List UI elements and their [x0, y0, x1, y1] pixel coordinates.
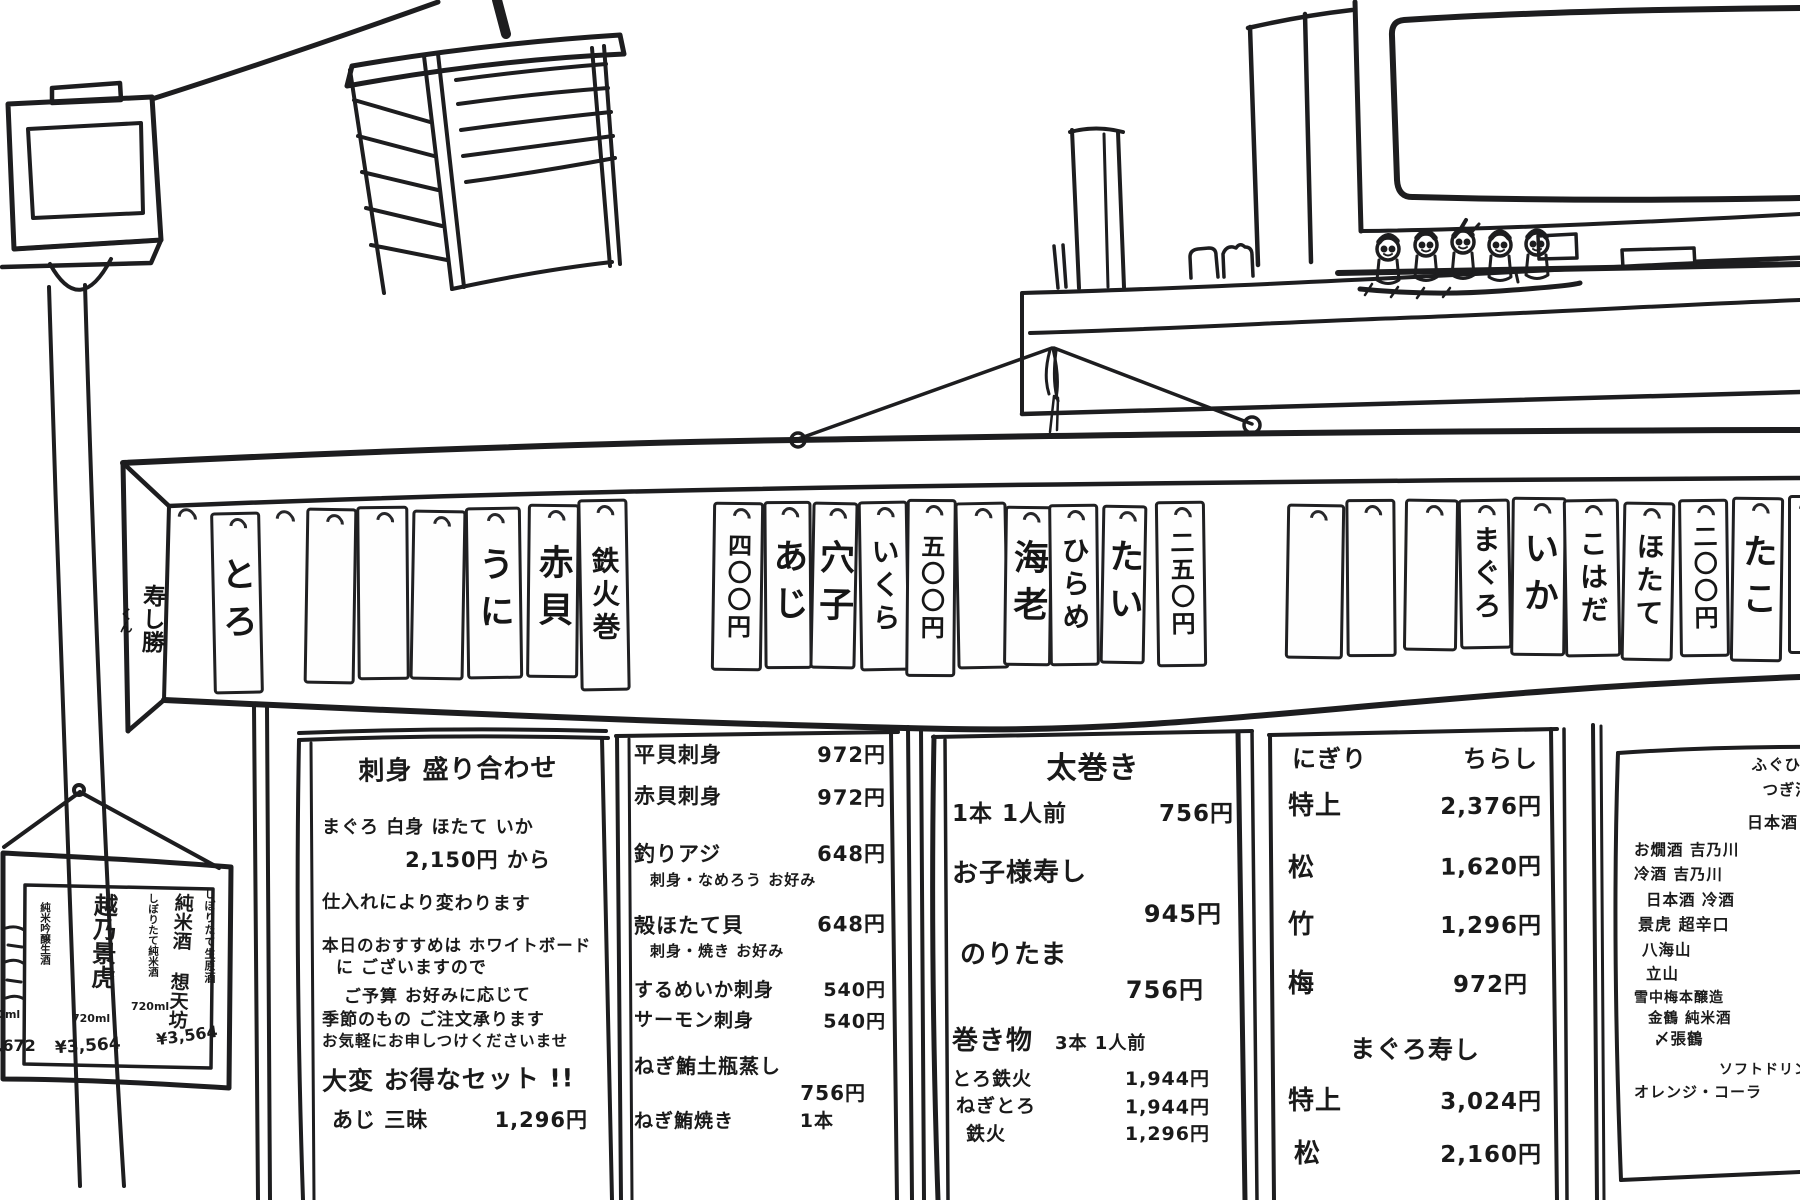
menu-row: 松2,160円: [1288, 1138, 1542, 1171]
tag-hook-icon: [373, 509, 398, 534]
menu-row: 赤貝刺身972円: [634, 783, 886, 811]
menu-row: 特上2,376円: [1288, 790, 1542, 823]
tag-hook-icon: [1170, 504, 1195, 529]
menu-tag: 二〇〇円: [1678, 499, 1730, 658]
hanging-lantern: [347, 0, 624, 293]
menu-tag: 四〇〇円: [711, 502, 764, 672]
menu-tag: 穴子: [809, 502, 858, 670]
menu-note: 刺身・なめろう お好み: [634, 871, 886, 890]
menu-row: ねぎ鮪焼き1本: [634, 1110, 834, 1134]
sake-price: ¥3,672: [0, 1036, 36, 1055]
menu-tag: たこ: [1730, 497, 1784, 663]
shop-name: 寿し勝: [133, 584, 169, 654]
menu-row: 殻ほたて貝648円: [634, 910, 886, 938]
menu-row: 釣りアジ648円: [634, 841, 886, 867]
tag-hook-icon: [1581, 502, 1606, 527]
menu-row: ねぎとろ1,944円: [952, 1095, 1234, 1121]
counter-fascia: [1022, 294, 1800, 414]
menu-tag-empty: [1345, 499, 1396, 657]
tag-hook-icon: [1306, 507, 1330, 532]
menu-tag-empty: [410, 510, 467, 681]
tag-hook-icon: [483, 510, 508, 535]
shop-name-panel: 寿し勝 くん: [123, 515, 170, 721]
menu-tag: いか: [1510, 497, 1567, 657]
menu-tag: 赤貝: [526, 504, 580, 679]
menu-tag-empty: [304, 508, 358, 685]
ceiling-cable-icon: [152, 2, 438, 99]
tag-hook-icon: [1795, 498, 1800, 523]
tag-hook-icon: [1115, 508, 1139, 533]
tv: [1392, 8, 1800, 200]
menu-tag: まぐろ: [1458, 499, 1513, 650]
menu-row: とろ鉄火1,944円: [952, 1068, 1234, 1092]
menu-row: 梅972円: [1288, 968, 1542, 1001]
board-sashimi-items: 平貝刺身972円 赤貝刺身972円 釣りアジ648円 刺身・なめろう お好み 殻…: [634, 742, 886, 1134]
tag-hook-icon: [971, 505, 996, 530]
sushi-shop-sketch: 寿し勝 くん とろ うに 赤貝 鉄火巻 四〇〇円 あじ 穴子 いくら 五〇〇円 …: [0, 0, 1800, 1200]
menu-tag: 鉄火巻: [577, 499, 630, 692]
column-header: ちらし: [1463, 744, 1538, 774]
menu-row: 平貝刺身972円: [634, 742, 886, 768]
menu-row: 鉄火1,296円: [952, 1123, 1234, 1147]
menu-row: 竹1,296円: [1288, 909, 1542, 942]
board-rolls: 太巻き 1本 1人前756円 お子様寿し 945円 のりたま 756円 巻き物 …: [952, 750, 1234, 1147]
board-nigiri: にぎり ちらし 特上2,376円 松1,620円 竹1,296円 梅972円 ま…: [1288, 744, 1542, 1170]
sake-size: 720ml: [0, 1008, 20, 1021]
menu-tag: 五〇〇円: [905, 499, 957, 677]
menu-row: 特上3,024円: [1288, 1085, 1542, 1118]
tag-hook-icon: [226, 515, 251, 540]
menu-tag: ひらめ: [1048, 504, 1100, 667]
menu-tag: いくら: [858, 501, 911, 672]
board-sashimi-set: 刺身 盛り合わせ まぐろ 白身 ほたて いか 2,150円 から 仕入れにより変…: [322, 754, 594, 1133]
menu-tag: あじ: [763, 501, 812, 669]
menu-tag: うに: [465, 507, 523, 680]
tag-hook-icon: [1361, 502, 1386, 527]
menu-tag-empty: [356, 506, 410, 680]
menu-row: サーモン刺身540円: [634, 1009, 886, 1035]
board-drinks: ふぐひれ酒 つぎ酒 日本酒 お燗酒 吉乃川 冷酒 吉乃川 日本酒 冷酒 景虎 超…: [1634, 756, 1800, 1102]
menu-row: 1本 1人前756円: [952, 800, 1234, 829]
tag-hook-icon: [1639, 505, 1663, 530]
menu-tag-empty: [954, 502, 1009, 670]
menu-row: ねぎ鮪土瓶蒸し: [634, 1054, 886, 1079]
column-header: にぎり: [1292, 744, 1367, 774]
board-title: 刺身 盛り合わせ: [322, 752, 595, 789]
promo-line: 大変 お得なセット !!: [322, 1062, 594, 1097]
menu-tag: たい: [1100, 505, 1148, 665]
menu-tag: 二五〇円: [1155, 501, 1207, 668]
tag-hook-icon: [826, 505, 850, 530]
menu-tag: こはだ: [1563, 499, 1621, 658]
tag-hook-icon: [1064, 507, 1089, 532]
street-lamp: [2, 83, 161, 290]
tag-hook-icon: [1019, 509, 1043, 534]
menu-row: のりたま: [952, 939, 1234, 972]
menu-tag-empty: [1403, 499, 1459, 652]
menu-tag: ほたて: [1621, 502, 1676, 662]
tag-hook-icon: [1693, 502, 1718, 527]
menu-note: 刺身・焼き お好み: [634, 942, 886, 961]
tag-hook-icon: [922, 502, 946, 527]
tag-hook-icon: [873, 504, 898, 529]
tag-hook-icon: [778, 504, 803, 529]
sake-size: 720ml: [72, 1012, 110, 1025]
menu-tag: 海老: [1003, 506, 1053, 667]
tag-hook-icon: [544, 507, 568, 532]
menu-tag-empty: [1285, 504, 1345, 660]
tag-hook-icon: [1529, 500, 1553, 525]
tag-hook-icon: [729, 505, 753, 530]
sake-sign-header: 純米吟醸生酒: [38, 902, 53, 1034]
tag-hook-icon: [1422, 502, 1446, 527]
section-title: まぐろ寿し: [1288, 1033, 1542, 1067]
menu-tag-partial: [1788, 495, 1800, 654]
sake-sign-header: しぼりたて純米酒: [146, 893, 161, 1035]
menu-row: お子様寿し: [952, 854, 1234, 890]
tag-hook-icon: [322, 511, 346, 536]
tag-hook-icon: [593, 502, 618, 527]
tag-hook-icon: [1748, 500, 1772, 525]
tag-hook-icon: [430, 513, 454, 538]
pulley-icon: [74, 785, 84, 795]
menu-row: 松1,620円: [1288, 849, 1542, 884]
board-title: 太巻き: [952, 750, 1234, 788]
tag-hook-icon: [1474, 502, 1499, 527]
shop-name-suffix: くん: [115, 607, 135, 633]
menu-tag: とろ: [210, 511, 264, 694]
menu-row: するめいか刺身540円: [634, 979, 886, 1003]
section-title: 巻き物: [952, 1025, 1033, 1058]
wall-shelf: [1022, 2, 1800, 333]
